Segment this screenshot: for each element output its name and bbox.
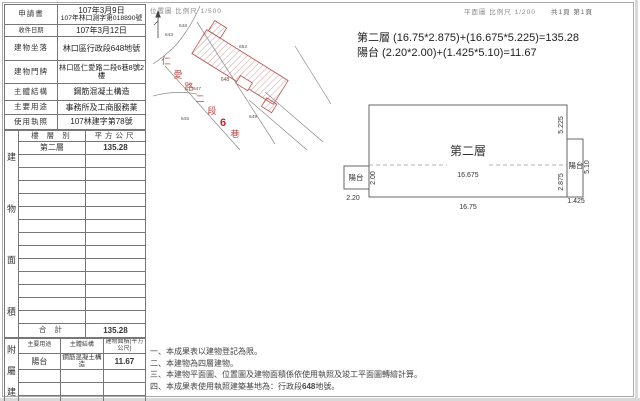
- table-row: 收件日期 107年3月12日: [5, 25, 146, 37]
- col-area: 建物面積(平方公尺): [103, 339, 145, 354]
- col-structure: 主體結構: [60, 339, 103, 354]
- notes-block: 一、本成果表以建物登記為限。 二、本建物為四層建物。 三、本建物平面圖、位置圖及…: [150, 346, 580, 392]
- road-char: 路: [184, 81, 193, 92]
- lot-label: 648: [179, 23, 187, 29]
- balcony-right-label: 陽台: [569, 160, 584, 170]
- total-value: 135.28: [85, 324, 145, 338]
- row-label: 申請書: [5, 5, 58, 25]
- empty-row: [18, 194, 145, 207]
- application-number: 107年林口測字第018890號: [58, 15, 145, 23]
- row-value: 林口區行政段648地號: [58, 37, 146, 61]
- building-lot-label: 648: [221, 77, 230, 83]
- col-area: 平方公尺: [85, 131, 145, 142]
- empty-row: [18, 369, 145, 382]
- col-floor: 樓 層 別: [18, 131, 85, 142]
- survey-document: 申請書 107年3月9日 107年林口測字第018890號 收件日期 107年3…: [0, 0, 640, 401]
- dim-right-balcony-height: 5.10: [584, 160, 591, 174]
- empty-row: [18, 272, 145, 285]
- road-char: 段: [207, 105, 216, 116]
- page-count: 共1頁 第1頁: [551, 6, 593, 16]
- empty-row: [18, 155, 145, 168]
- empty-row: [18, 395, 145, 401]
- table-row: 主體結構 鋼筋混凝土構造: [5, 84, 146, 101]
- empty-row: [18, 233, 145, 246]
- row-label: 使用執照: [5, 115, 58, 130]
- col-use: 主要用途: [18, 339, 60, 354]
- row-value: 107年3月12日: [58, 25, 146, 37]
- table-row: 建物門牌 林口區仁愛路二段6巷8號2樓: [5, 61, 146, 84]
- road-char: 仁: [161, 55, 170, 66]
- north-arrow-icon: [154, 10, 161, 38]
- total-row: 合 計 135.28: [18, 324, 145, 338]
- empty-row: [18, 246, 145, 259]
- balcony-left-label: 陽台: [349, 172, 364, 182]
- row-label: 建物坐落: [5, 37, 58, 61]
- row-value: 鋼筋混凝土構造: [58, 84, 146, 101]
- empty-row: [18, 168, 145, 181]
- floor-area-value: 135.28: [85, 142, 145, 155]
- empty-row: [18, 285, 145, 298]
- road-lane-number: 6: [220, 117, 226, 129]
- table-row: 建物坐落 林口區行政段648地號: [5, 37, 146, 61]
- total-label: 合 計: [18, 324, 85, 338]
- row-label: 主體結構: [5, 84, 58, 101]
- empty-row: [18, 311, 145, 324]
- empty-row: [18, 298, 145, 311]
- location-map: 648 643 652 647 645 649 648 仁 愛 路 二 段 6 …: [145, 4, 340, 150]
- row-value: 林口區仁愛路二段6巷8號2樓: [58, 61, 146, 84]
- dim-right-lower-height: 2.875: [558, 173, 565, 191]
- dim-bottom-width: 16.75: [459, 204, 477, 211]
- note-line: 四、本成果表使用執照建築基地為：行政段648地號。: [150, 381, 580, 393]
- building-info-table: 申請書 107年3月9日 107年林口測字第018890號 收件日期 107年3…: [4, 4, 146, 130]
- table-row: 申請書 107年3月9日 107年林口測字第018890號: [5, 5, 146, 25]
- note-line: 三、本建物平面圖、位置圖及建物面積係依使用執照及竣工平面圖轉繪計算。: [150, 369, 580, 381]
- note-lot-number: 648: [302, 382, 315, 391]
- note-line: 二、本建物為四層建物。: [150, 358, 580, 370]
- note-line: 一、本成果表以建物登記為限。: [150, 346, 580, 358]
- empty-row: [18, 220, 145, 233]
- road-char: 巷: [230, 129, 239, 139]
- dim-left-balcony-width: 2.20: [346, 195, 360, 202]
- floor-area-section: 建 物 面 積 樓 層 別 平方公尺 第二層 135.28: [4, 130, 146, 338]
- lot-label: 647: [193, 86, 201, 92]
- dim-left-balcony-height: 2.00: [370, 171, 377, 185]
- table-header-row: 主要用途 主體結構 建物面積(平方公尺): [18, 339, 145, 354]
- formula-balcony: 陽台 (2.20*2.00)+(1.425*5.10)=11.67: [357, 46, 579, 61]
- annex-use: 陽台: [18, 353, 60, 369]
- dim-right-balcony-width: 1.425: [567, 198, 585, 205]
- floor-area-table: 樓 層 別 平方公尺 第二層 135.28: [18, 130, 146, 338]
- table-row: 第二層 135.28: [18, 142, 145, 155]
- table-header-row: 樓 層 別 平方公尺: [18, 131, 145, 142]
- empty-row: [18, 382, 145, 395]
- road-char: 二: [195, 94, 204, 104]
- row-label: 建物門牌: [5, 61, 58, 84]
- dim-mid-width: 16.675: [457, 172, 479, 179]
- annex-side-label: 附 屬 建 物: [4, 338, 18, 401]
- empty-row: [18, 181, 145, 194]
- table-row: 使用執照 107林建字第78號: [5, 115, 146, 130]
- floor-area-side-label: 建 物 面 積: [4, 130, 18, 338]
- empty-row: [18, 259, 145, 272]
- dim-right-upper-height: 5.225: [558, 116, 565, 134]
- empty-row: [18, 207, 145, 220]
- row-value: 事務所及工商服務業: [58, 101, 146, 115]
- lot-label: 643: [165, 32, 173, 38]
- road-char: 愛: [173, 69, 182, 80]
- area-formulas: 第二層 (16.75*2.875)+(16.675*5.225)=135.28 …: [357, 31, 579, 61]
- lot-label: 652: [239, 44, 247, 50]
- annex-area-value: 11.67: [103, 353, 145, 369]
- table-row: 主要用途 事務所及工商服務業: [5, 101, 146, 115]
- row-value: 107林建字第78號: [58, 115, 146, 130]
- floor-name: 第二層: [18, 142, 85, 155]
- room-label: 第二層: [450, 144, 486, 158]
- floor-plan: 第二層 陽台 陽台 16.675 16.75 2.20 2.00 5.225 2…: [335, 88, 605, 220]
- row-label: 主要用途: [5, 101, 58, 115]
- annex-table: 主要用途 主體結構 建物面積(平方公尺) 陽台 鋼筋混凝土構造 11.67 合 …: [18, 338, 146, 401]
- formula-floor: 第二層 (16.75*2.875)+(16.675*5.225)=135.28: [357, 31, 579, 46]
- lot-label: 645: [181, 116, 189, 122]
- table-row: 陽台 鋼筋混凝土構造 11.67: [18, 353, 145, 369]
- page-edge-right: [635, 0, 638, 401]
- application-date: 107年3月9日: [58, 6, 145, 15]
- floor-plan-caption: 平面圖 比例尺 1/200: [464, 6, 536, 16]
- lot-label: 649: [249, 114, 257, 120]
- row-value: 107年3月9日 107年林口測字第018890號: [58, 5, 146, 25]
- annex-section: 附 屬 建 物 主要用途 主體結構 建物面積(平方公尺) 陽台 鋼筋混凝土構造 …: [4, 338, 146, 401]
- row-label: 收件日期: [5, 25, 58, 37]
- left-table-block: 申請書 107年3月9日 107年林口測字第018890號 收件日期 107年3…: [4, 4, 146, 401]
- annex-structure: 鋼筋混凝土構造: [60, 353, 103, 369]
